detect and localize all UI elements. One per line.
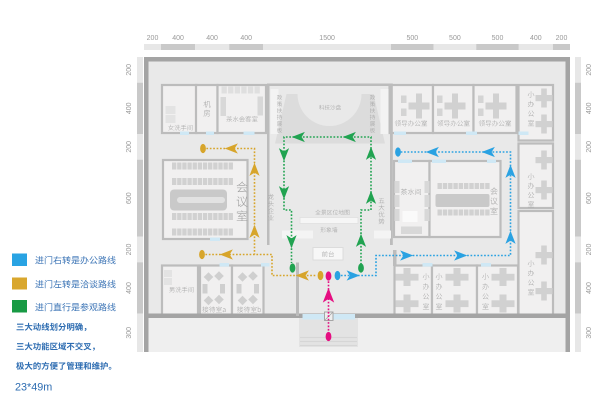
svg-text:23*49m: 23*49m [15,382,52,394]
svg-text:200: 200 [556,35,568,42]
svg-text:200: 200 [126,64,133,76]
svg-text:500: 500 [492,35,504,42]
svg-text:200: 200 [147,35,159,42]
svg-text:600: 600 [126,192,133,204]
svg-text:400: 400 [586,102,593,114]
svg-text:400: 400 [172,35,184,42]
svg-text:400: 400 [126,102,133,114]
svg-text:600: 600 [586,192,593,204]
svg-text:400: 400 [586,282,593,294]
svg-text:200: 200 [586,64,593,76]
svg-text:1500: 1500 [319,35,335,42]
svg-text:400: 400 [530,35,542,42]
svg-text:200: 200 [586,244,593,256]
svg-text:200: 200 [126,244,133,256]
svg-text:400: 400 [126,282,133,294]
svg-text:300: 300 [586,327,593,339]
svg-text:400: 400 [206,35,218,42]
svg-text:200: 200 [126,141,133,153]
svg-text:500: 500 [406,35,418,42]
svg-text:200: 200 [586,141,593,153]
svg-text:400: 400 [240,35,252,42]
svg-text:300: 300 [126,327,133,339]
svg-text:500: 500 [449,35,461,42]
